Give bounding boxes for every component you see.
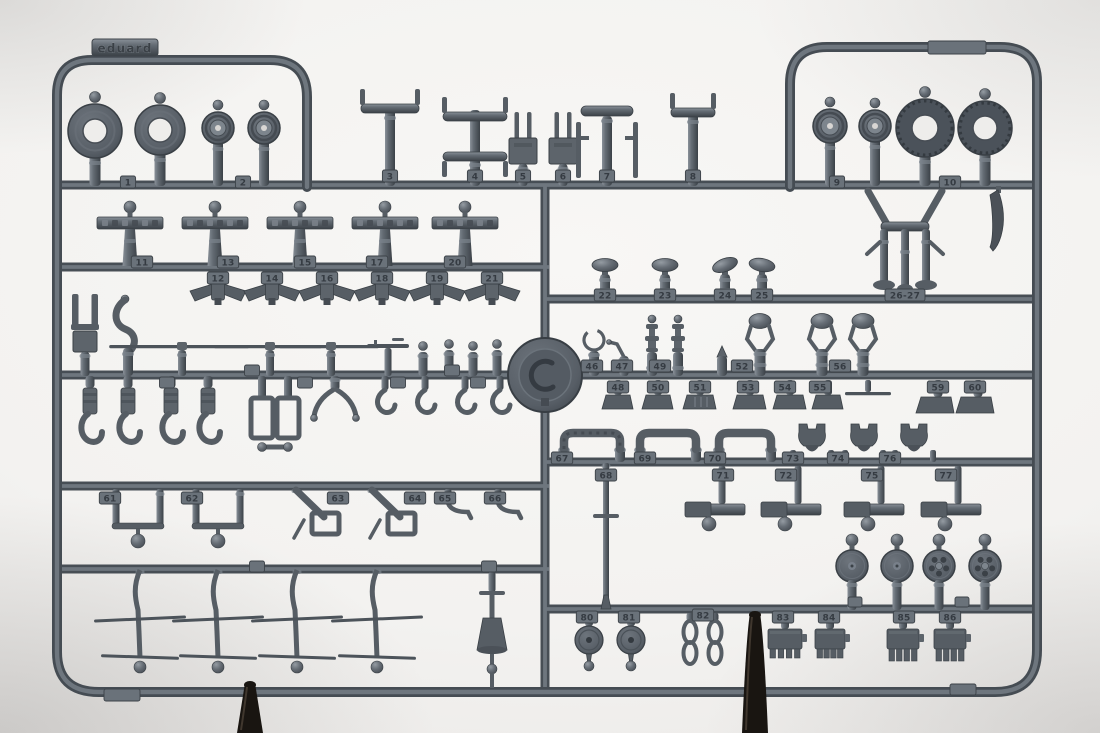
part-hubw (859, 98, 891, 186)
part-vpart (244, 281, 300, 305)
part-number-tab: 82 (692, 609, 713, 622)
blank-tab (298, 377, 313, 388)
svg-text:17: 17 (370, 259, 383, 269)
part-ring (135, 93, 185, 187)
part-number-tab: 81 (618, 611, 639, 624)
svg-text:85: 85 (897, 614, 910, 624)
sprue-svg: 1234567891011131517201214161819212223242… (0, 0, 1100, 733)
svg-text:63: 63 (331, 495, 344, 505)
part-hookSm (418, 376, 435, 412)
svg-text:1: 1 (125, 179, 132, 189)
part-number-tab: 3 (382, 170, 397, 183)
svg-text:83: 83 (776, 614, 789, 624)
svg-text:13: 13 (221, 259, 234, 269)
part-hubw (813, 97, 847, 186)
svg-text:53: 53 (741, 384, 754, 394)
svg-text:3: 3 (387, 173, 394, 183)
part-clamp (119, 376, 140, 442)
part-number-tab: 67 (551, 452, 572, 465)
blank-tab (160, 377, 175, 388)
svg-text:76: 76 (883, 455, 896, 465)
svg-text:11: 11 (135, 259, 148, 269)
part-number-tab: 7 (599, 170, 614, 183)
part-candle (671, 315, 685, 376)
part-cyl (418, 342, 429, 377)
svg-text:10: 10 (943, 179, 956, 189)
svg-text:12: 12 (211, 275, 224, 285)
svg-text:55: 55 (813, 384, 826, 394)
part-number-tab: 2 (235, 176, 250, 189)
display-stand (742, 611, 768, 733)
brand-logo-text: eduard (97, 42, 152, 56)
part-number-tab: 54 (774, 381, 795, 394)
part-number-tab: 17 (366, 256, 387, 269)
blank-tab (955, 597, 969, 607)
svg-text:71: 71 (716, 472, 729, 482)
part-clamp (199, 376, 220, 442)
svg-text:77: 77 (939, 472, 952, 482)
part-number-tab: 64 (404, 492, 425, 505)
part-gun (367, 338, 409, 376)
part-forkCap (850, 314, 876, 377)
part-mast (251, 570, 343, 673)
blank-tab (250, 561, 265, 572)
part-thinLine (845, 380, 891, 395)
svg-text:7: 7 (604, 173, 611, 183)
svg-text:22: 22 (598, 292, 611, 302)
part-dumbbell (258, 443, 293, 452)
svg-text:82: 82 (696, 612, 709, 622)
svg-text:64: 64 (408, 495, 421, 505)
part-panel (97, 201, 163, 266)
part-number-tab: 49 (649, 360, 670, 373)
part-ring (68, 92, 122, 187)
part-number-tab: 15 (294, 256, 315, 269)
part-vpart (409, 281, 465, 305)
part-disc (881, 534, 913, 610)
part-hubw (202, 100, 234, 186)
part-number-tab: 84 (818, 611, 839, 624)
svg-text:56: 56 (833, 363, 846, 373)
part-clamp (81, 376, 102, 442)
svg-text:23: 23 (658, 292, 671, 302)
part-number-tab: 86 (939, 611, 960, 624)
part-number-tab: 74 (827, 452, 848, 465)
blank-tab (245, 365, 260, 376)
svg-text:65: 65 (438, 495, 451, 505)
part-disc (923, 534, 955, 610)
svg-text:9: 9 (834, 179, 841, 189)
svg-text:61: 61 (103, 495, 116, 505)
blank-tab (391, 377, 406, 388)
part-number-tab: 73 (782, 452, 803, 465)
part-vspread (311, 376, 360, 422)
part-number-tab: 59 (927, 381, 948, 394)
part-number-tab: 69 (634, 452, 655, 465)
part-number-tab: 85 (893, 611, 914, 624)
part-number-tab: 62 (181, 492, 202, 505)
part-rectFrame (251, 376, 273, 438)
svg-text:59: 59 (931, 384, 944, 394)
svg-text:86: 86 (943, 614, 956, 624)
part-cyl (468, 342, 479, 377)
part-number-tab: 6 (555, 170, 570, 183)
part-vpart (299, 281, 355, 305)
part-number-tab: 8 (685, 170, 700, 183)
part-number-tab: 25 (751, 289, 772, 302)
sprue-photo: 1234567891011131517201214161819212223242… (0, 0, 1100, 733)
svg-text:66: 66 (488, 495, 501, 505)
part-funnel (477, 572, 507, 688)
svg-text:69: 69 (638, 455, 651, 465)
part-number-tab: 70 (704, 452, 725, 465)
part-number-tab: 61 (99, 492, 120, 505)
part-number-tab: 50 (647, 381, 668, 394)
svg-text:19: 19 (430, 275, 443, 285)
svg-text:14: 14 (265, 275, 278, 285)
part-number-tab: 9 (829, 176, 844, 189)
part-forkTall (71, 294, 99, 376)
part-number-tab: 18 (371, 272, 392, 285)
part-number-tab: 13 (217, 256, 238, 269)
svg-text:84: 84 (822, 614, 835, 624)
part-rectFrame (277, 376, 299, 438)
svg-text:48: 48 (611, 384, 624, 394)
svg-text:54: 54 (778, 384, 791, 394)
part-number-tab: 55 (809, 381, 830, 394)
svg-text:60: 60 (968, 384, 981, 394)
part-number-tab: 26-27 (885, 289, 925, 302)
part-number-tab: 22 (594, 289, 615, 302)
brand-tab: eduard (92, 39, 158, 56)
part-number-tab: 66 (484, 492, 505, 505)
part-hubw (248, 100, 280, 186)
svg-text:25: 25 (755, 292, 768, 302)
blank-tab (471, 377, 486, 388)
part-number-tab: 71 (712, 469, 733, 482)
part-hookCurve (116, 295, 134, 376)
svg-text:68: 68 (599, 472, 612, 482)
svg-text:46: 46 (585, 363, 598, 373)
part-tire (958, 89, 1012, 187)
part-number-tab: 83 (772, 611, 793, 624)
svg-text:51: 51 (693, 384, 706, 394)
part-number-tab: 65 (434, 492, 455, 505)
part-number-tab: 14 (261, 272, 282, 285)
svg-text:80: 80 (580, 614, 593, 624)
part-number-tab: 11 (131, 256, 152, 269)
part-number-tab: 51 (689, 381, 710, 394)
svg-text:16: 16 (320, 275, 333, 285)
part-vpart (354, 281, 410, 305)
svg-text:47: 47 (615, 363, 628, 373)
part-vpart (464, 281, 520, 305)
blank-tab (482, 561, 497, 572)
part-number-tab: 46 (581, 360, 602, 373)
svg-text:73: 73 (786, 455, 799, 465)
svg-text:81: 81 (622, 614, 635, 624)
part-number-tab: 60 (964, 381, 985, 394)
svg-text:5: 5 (520, 173, 527, 183)
part-number-tab: 4 (467, 170, 482, 183)
part-tire (896, 87, 954, 187)
part-hookSm (493, 376, 510, 412)
svg-text:74: 74 (831, 455, 844, 465)
part-number-tab: 63 (327, 492, 348, 505)
blank-tab (848, 597, 862, 607)
part-cyl (492, 340, 503, 377)
svg-text:4: 4 (472, 173, 479, 183)
part-vpart (190, 281, 246, 305)
svg-text:70: 70 (708, 455, 721, 465)
part-engineMount (867, 191, 943, 298)
svg-text:62: 62 (185, 495, 198, 505)
svg-text:72: 72 (779, 472, 792, 482)
blank-tab (445, 365, 460, 376)
part-number-tab: 19 (426, 272, 447, 285)
svg-text:2: 2 (240, 179, 247, 189)
svg-text:75: 75 (865, 472, 878, 482)
svg-text:6: 6 (560, 173, 567, 183)
part-number-tab: 52 (731, 360, 752, 373)
part-number-tab: 16 (316, 272, 337, 285)
part-number-tab: 68 (595, 469, 616, 482)
blank-tab (950, 684, 976, 695)
svg-text:24: 24 (718, 292, 731, 302)
part-number-tab: 77 (935, 469, 956, 482)
svg-text:49: 49 (653, 363, 666, 373)
part-rodLong (593, 463, 619, 609)
svg-text:50: 50 (651, 384, 664, 394)
part-number-tab: 75 (861, 469, 882, 482)
part-knife (990, 186, 1003, 251)
part-bullet (717, 346, 727, 376)
svg-text:26-27: 26-27 (890, 292, 920, 302)
svg-text:67: 67 (555, 455, 568, 465)
svg-text:21: 21 (485, 275, 498, 285)
part-number-tab: 53 (737, 381, 758, 394)
part-number-tab: 10 (939, 176, 960, 189)
part-number-tab: 20 (444, 256, 465, 269)
part-number-tab: 24 (714, 289, 735, 302)
part-number-tab: 80 (576, 611, 597, 624)
blank-tab (104, 689, 140, 701)
part-number-tab: 72 (775, 469, 796, 482)
part-number-tab: 5 (515, 170, 530, 183)
part-number-tab: 56 (829, 360, 850, 373)
part-number-tab: 1 (120, 176, 135, 189)
svg-text:20: 20 (448, 259, 461, 269)
part-disc (969, 534, 1001, 610)
blank-tab (928, 41, 986, 54)
part-number-tab: 47 (611, 360, 632, 373)
part-number-tab: 76 (879, 452, 900, 465)
svg-text:8: 8 (690, 173, 697, 183)
part-number-tab: 12 (207, 272, 228, 285)
part-mast (331, 570, 423, 673)
part-number-tab: 48 (607, 381, 628, 394)
part-mast (172, 570, 264, 673)
svg-text:18: 18 (375, 275, 388, 285)
svg-text:15: 15 (298, 259, 311, 269)
svg-text:52: 52 (735, 363, 748, 373)
part-number-tab: 21 (481, 272, 502, 285)
part-number-tab: 23 (654, 289, 675, 302)
sprue-center-hub (508, 338, 582, 412)
